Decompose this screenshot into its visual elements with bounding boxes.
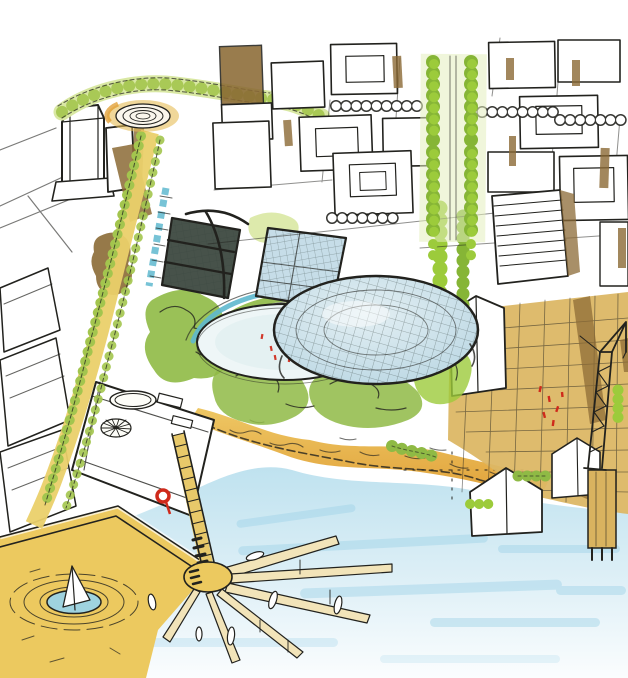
sketch-stroke (558, 40, 620, 82)
sketch-stroke (588, 470, 616, 548)
sketch-stroke (346, 56, 384, 83)
sketch-stroke (196, 627, 202, 641)
sketch-stroke (360, 172, 387, 191)
sketch-stroke (322, 301, 390, 327)
sketch-stroke (380, 655, 560, 663)
sketch-stroke (219, 45, 263, 104)
sketch-stroke (599, 148, 609, 188)
sketch-stroke (489, 41, 556, 88)
glass-mesh-dome (274, 276, 478, 384)
sketch-stroke (618, 228, 626, 268)
sketch-stroke (488, 152, 554, 192)
sketch-stroke (115, 426, 118, 429)
parasol (101, 419, 131, 437)
sketch-stroke (556, 586, 626, 595)
stepped-block-e (333, 151, 413, 216)
sketch-stroke (572, 60, 580, 86)
sketch-stroke (213, 121, 271, 189)
stepped-block-a (331, 43, 398, 94)
timber-pier (588, 470, 616, 560)
waterfront-concept-sketch (0, 0, 628, 678)
sketch-stroke (162, 218, 240, 298)
tree-lined-boulevard (419, 54, 487, 262)
sketch-stroke (430, 618, 600, 627)
sketch-stroke (392, 56, 403, 88)
sketch-stroke (492, 190, 568, 284)
terraced-roof-building (492, 190, 580, 284)
sketch-stroke (52, 178, 114, 201)
sketch-stroke (271, 61, 325, 109)
sketch-stroke (509, 136, 516, 166)
sketch-stroke (506, 58, 514, 80)
sketch-canvas (0, 0, 628, 678)
